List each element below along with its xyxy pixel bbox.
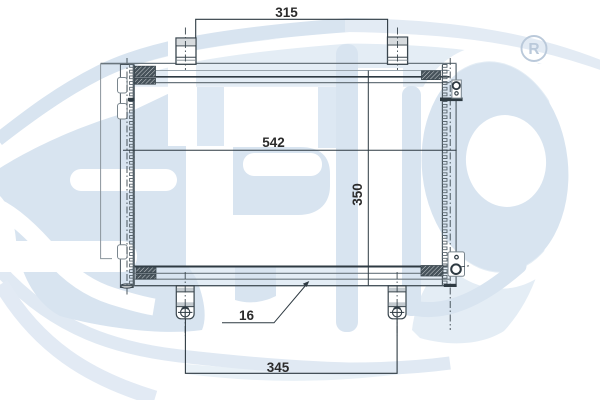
svg-text:315: 315: [275, 5, 298, 20]
svg-text:R: R: [528, 41, 539, 58]
svg-text:350: 350: [350, 183, 365, 206]
svg-text:345: 345: [267, 360, 290, 375]
svg-text:542: 542: [262, 135, 285, 150]
svg-text:16: 16: [239, 308, 255, 323]
